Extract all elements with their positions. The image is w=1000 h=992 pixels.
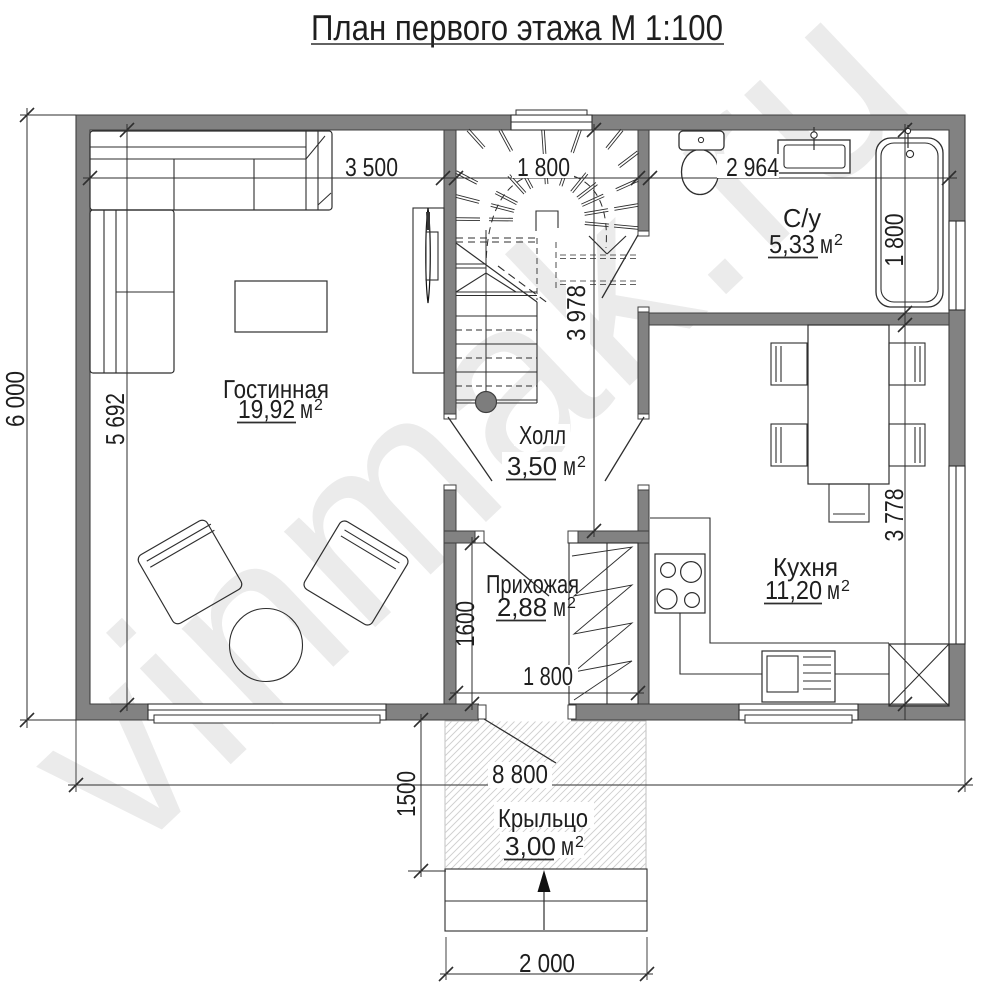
svg-text:2: 2 <box>567 595 576 612</box>
svg-text:2: 2 <box>841 578 850 595</box>
svg-text:м: м <box>827 575 840 605</box>
svg-text:6 000: 6 000 <box>0 371 30 427</box>
svg-text:2,88: 2,88 <box>497 592 547 622</box>
svg-text:3,00: 3,00 <box>505 831 556 861</box>
svg-text:8 800: 8 800 <box>492 759 548 789</box>
svg-text:3,50: 3,50 <box>507 451 557 481</box>
svg-text:1 800: 1 800 <box>879 214 909 267</box>
svg-text:м: м <box>563 451 576 481</box>
svg-text:2: 2 <box>834 232 843 249</box>
svg-text:м: м <box>561 831 574 861</box>
svg-text:2: 2 <box>577 454 586 471</box>
svg-text:м: м <box>300 394 313 424</box>
svg-text:3 978: 3 978 <box>561 285 591 341</box>
svg-text:1 800: 1 800 <box>517 152 570 182</box>
svg-text:3 778: 3 778 <box>879 489 909 542</box>
svg-text:Холл: Холл <box>519 420 566 450</box>
svg-text:м: м <box>820 229 833 259</box>
svg-text:План первого этажа М 1:100: План первого этажа М 1:100 <box>311 7 723 48</box>
svg-text:2: 2 <box>314 397 323 414</box>
svg-text:3 500: 3 500 <box>345 152 398 182</box>
svg-text:5,33: 5,33 <box>769 229 815 259</box>
svg-text:1500: 1500 <box>391 771 421 817</box>
svg-text:19,92: 19,92 <box>238 394 295 424</box>
svg-text:11,20: 11,20 <box>765 575 822 605</box>
svg-text:5 692: 5 692 <box>100 393 130 445</box>
svg-text:1 800: 1 800 <box>523 661 573 691</box>
svg-text:Крыльцо: Крыльцо <box>498 803 588 833</box>
svg-text:2: 2 <box>575 834 584 851</box>
svg-text:2 000: 2 000 <box>519 948 575 978</box>
svg-text:1600: 1600 <box>450 601 480 647</box>
svg-text:м: м <box>553 592 566 622</box>
svg-text:2 964: 2 964 <box>726 152 779 182</box>
